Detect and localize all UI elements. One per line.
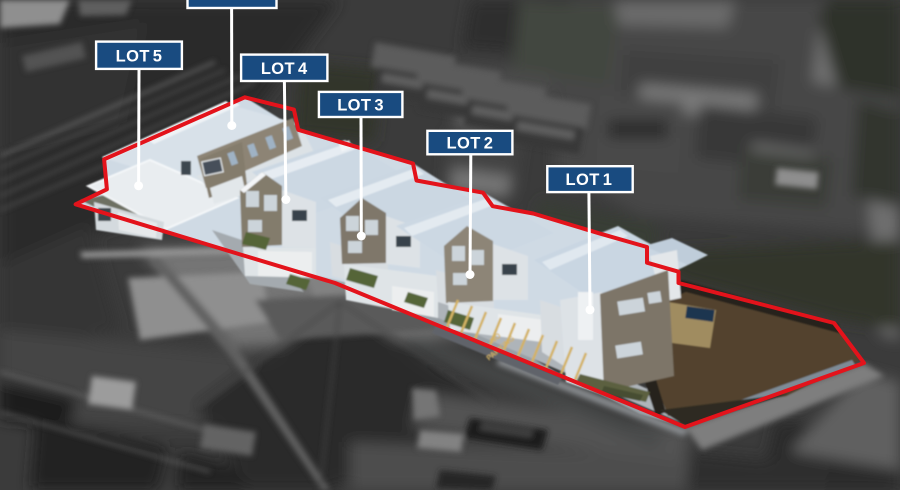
svg-text:LOT 3: LOT 3 [337,97,384,115]
svg-text:LOT 1: LOT 1 [566,171,613,189]
svg-text:LOT 2: LOT 2 [447,135,494,153]
svg-text:LOT 5: LOT 5 [116,48,163,66]
svg-text:LOT 4: LOT 4 [261,60,308,78]
